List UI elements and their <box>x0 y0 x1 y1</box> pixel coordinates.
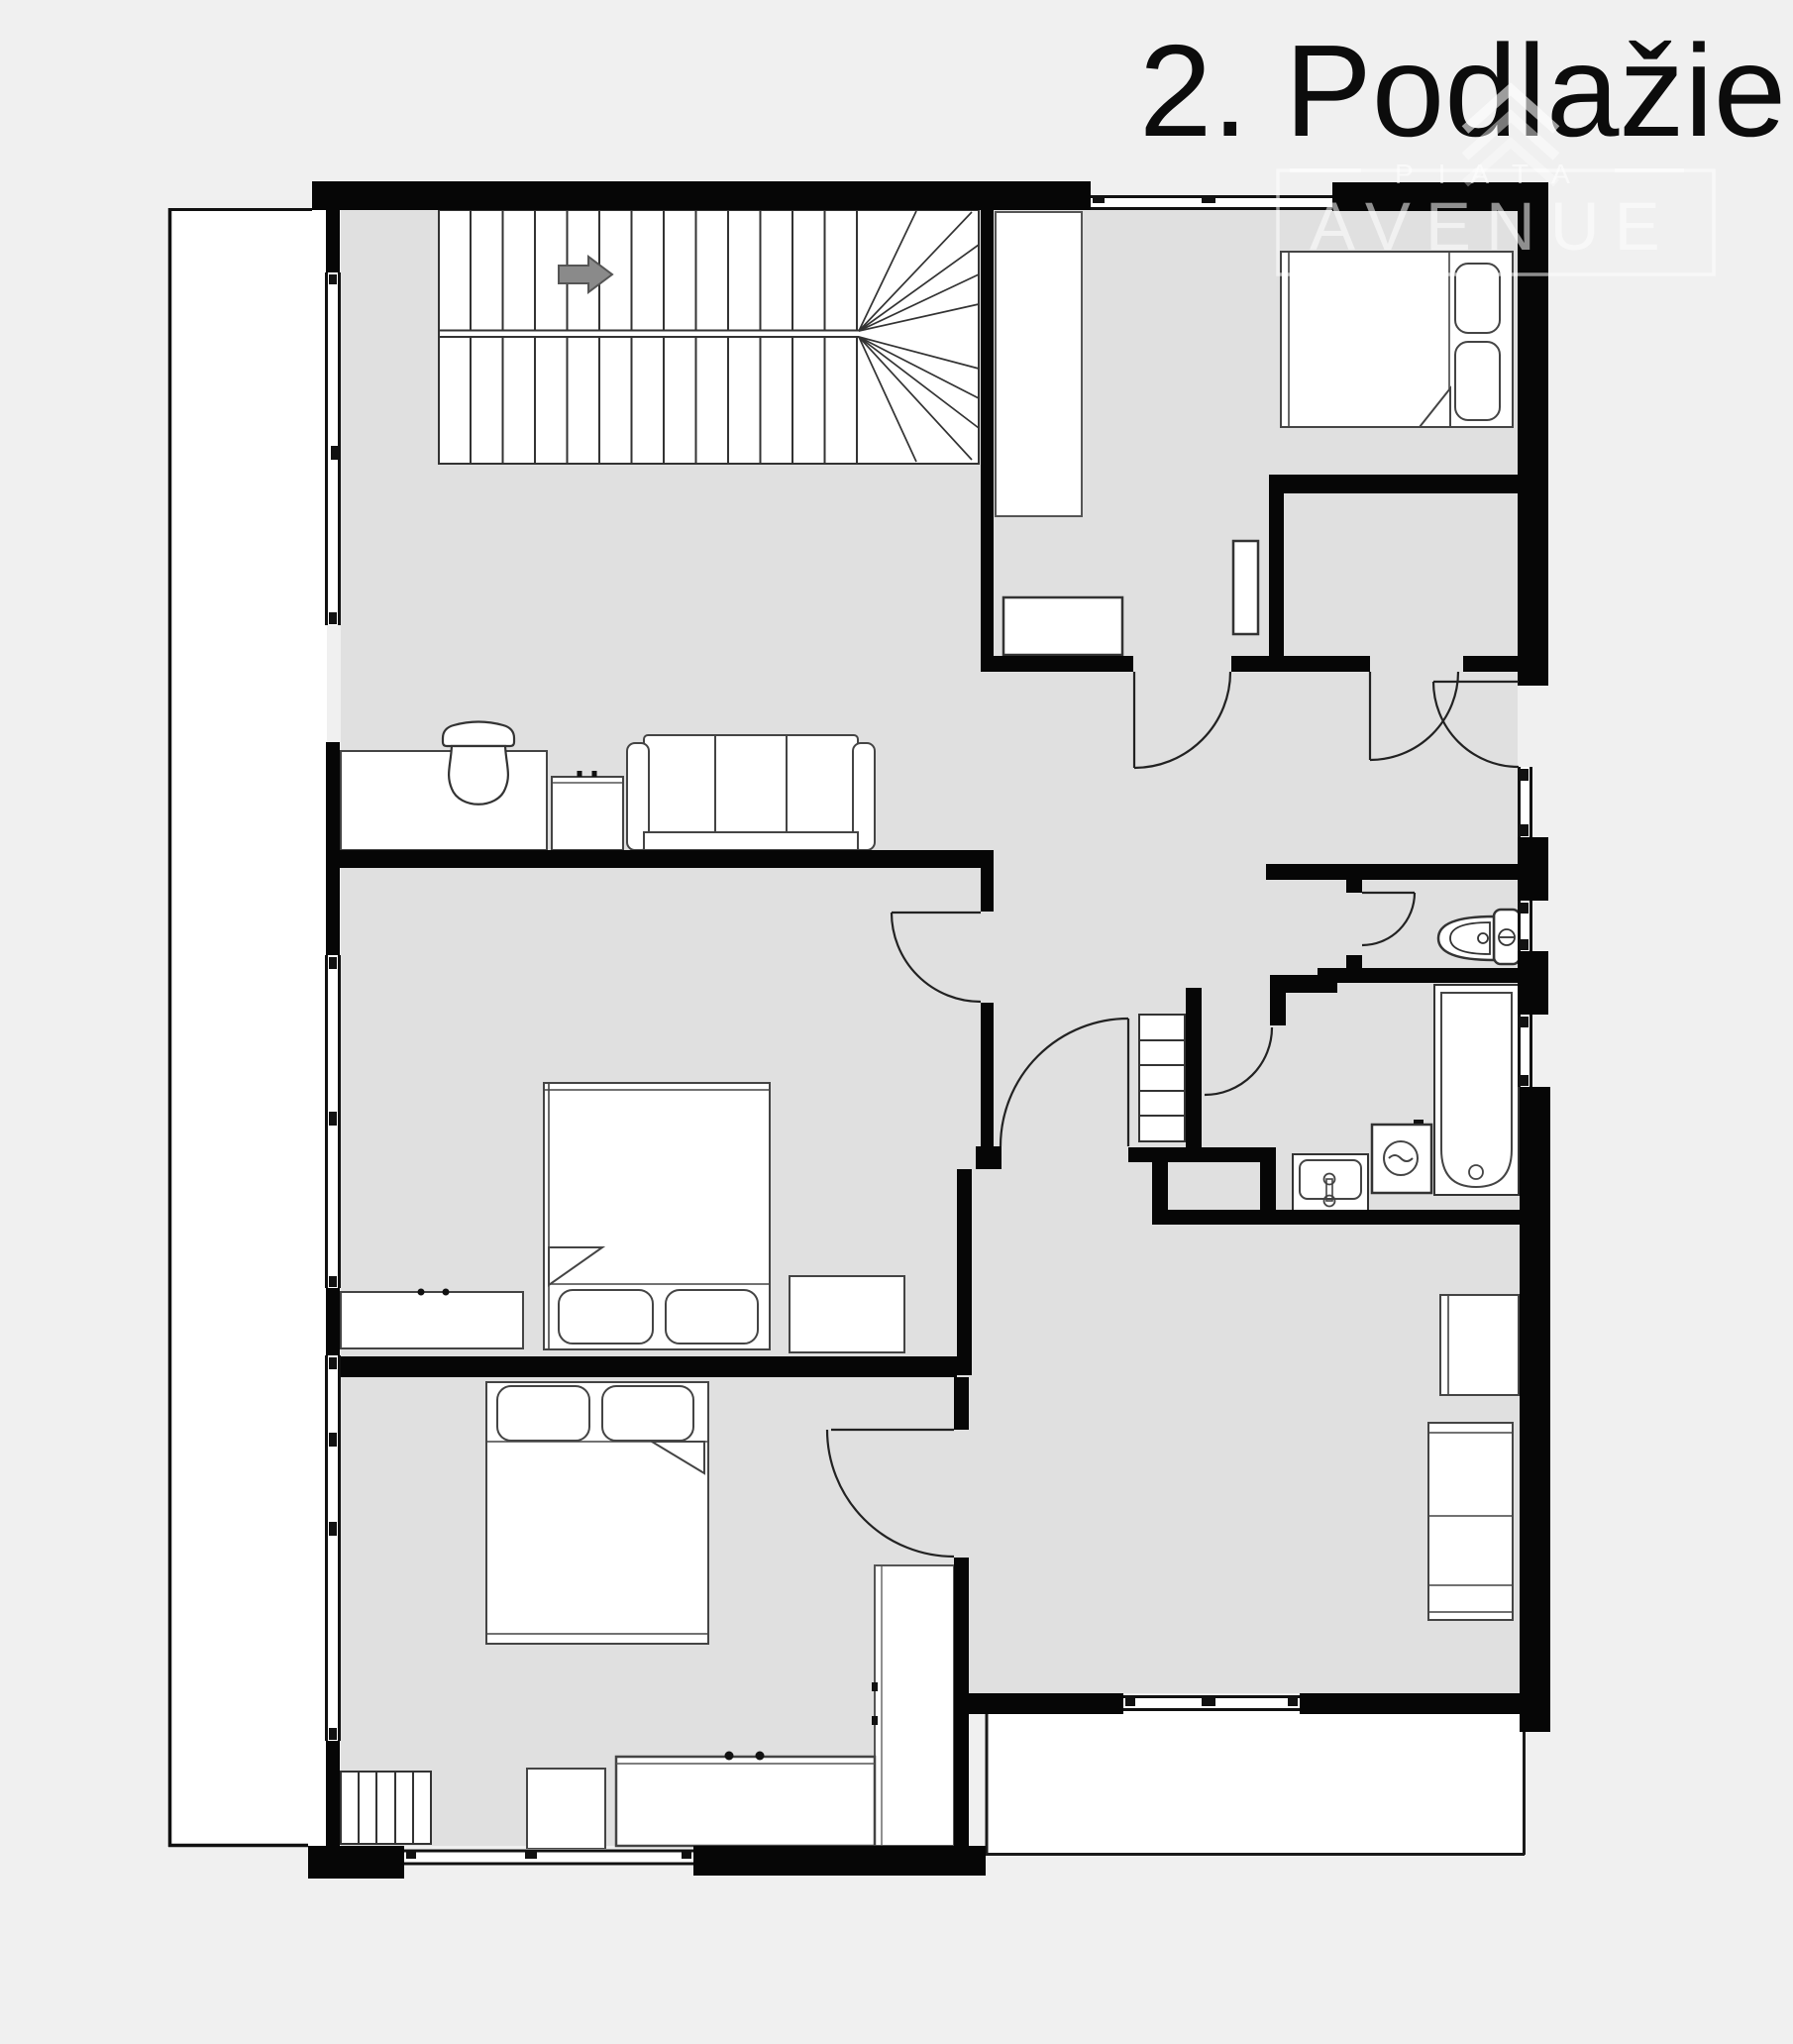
svg-text:PIATA: PIATA <box>1395 159 1595 189</box>
svg-text:2. Podlažie: 2. Podlažie <box>1139 18 1786 163</box>
svg-text:AVENUE: AVENUE <box>1310 188 1675 265</box>
